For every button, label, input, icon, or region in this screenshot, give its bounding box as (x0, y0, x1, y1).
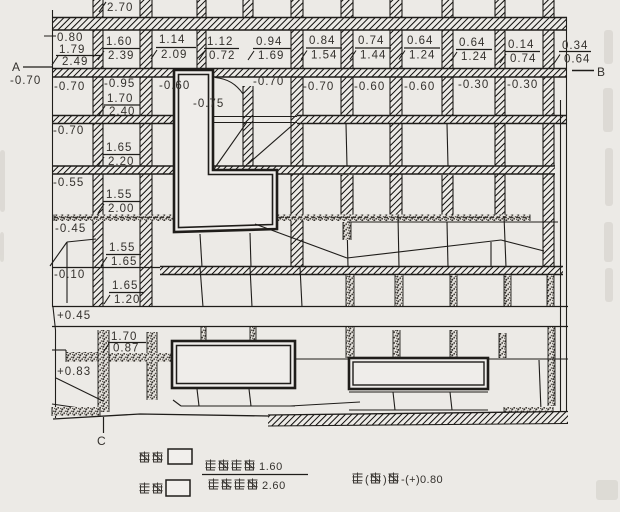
svg-text:B: B (597, 65, 605, 79)
svg-text:2.70: 2.70 (107, 2, 133, 14)
svg-text:1.70: 1.70 (111, 331, 137, 343)
svg-text:1.60: 1.60 (106, 36, 132, 48)
svg-text:1.69: 1.69 (258, 50, 284, 62)
svg-text:-0.70: -0.70 (53, 125, 84, 137)
svg-text:-0.30: -0.30 (458, 79, 489, 91)
svg-text:1.54: 1.54 (311, 50, 337, 62)
svg-text:1.24: 1.24 (461, 51, 487, 63)
svg-text:-0.95: -0.95 (104, 78, 135, 90)
svg-text:1.14: 1.14 (159, 34, 185, 46)
svg-text:-0.60: -0.60 (159, 80, 190, 92)
svg-text:2.60: 2.60 (262, 480, 286, 492)
svg-text:1.44: 1.44 (360, 50, 386, 62)
svg-text:A: A (12, 60, 20, 74)
svg-text:0.94: 0.94 (256, 36, 282, 48)
svg-text:0.72: 0.72 (209, 50, 235, 62)
svg-text:-0.60: -0.60 (404, 81, 435, 93)
svg-text:0.14: 0.14 (508, 39, 534, 51)
svg-text:-0.70: -0.70 (253, 76, 284, 88)
svg-text:-0.60: -0.60 (354, 81, 385, 93)
svg-text:1.55: 1.55 (109, 242, 135, 254)
svg-text:1.70: 1.70 (107, 93, 133, 105)
svg-text:0.84: 0.84 (309, 35, 335, 47)
svg-text:-0.70: -0.70 (10, 75, 41, 87)
svg-text:-0.30: -0.30 (507, 79, 538, 91)
svg-text:0.74: 0.74 (510, 53, 536, 65)
svg-text:-0.70: -0.70 (54, 81, 85, 93)
svg-text:): ) (383, 474, 387, 486)
svg-text:2.20: 2.20 (108, 156, 134, 168)
svg-text:+0.45: +0.45 (57, 310, 91, 322)
svg-text:2.00: 2.00 (108, 203, 134, 215)
svg-text:0.80: 0.80 (57, 32, 83, 44)
svg-text:+0.83: +0.83 (57, 366, 91, 378)
svg-text:0.64: 0.64 (407, 35, 433, 47)
svg-text:(: ( (365, 474, 369, 486)
svg-text:1.55: 1.55 (106, 189, 132, 201)
svg-text:2.40: 2.40 (109, 106, 135, 118)
svg-text:1.65: 1.65 (106, 142, 132, 154)
svg-text:-0.75: -0.75 (193, 98, 224, 110)
svg-text:-0.55: -0.55 (53, 177, 84, 189)
svg-text:1.65: 1.65 (111, 256, 137, 268)
svg-text:2.09: 2.09 (161, 49, 187, 61)
svg-text:1.65: 1.65 (112, 280, 138, 292)
svg-text:2.39: 2.39 (108, 50, 134, 62)
svg-text:2.49: 2.49 (62, 56, 88, 68)
svg-text:-0.45: -0.45 (55, 223, 86, 235)
svg-text:0.64: 0.64 (564, 54, 590, 66)
svg-text:1.24: 1.24 (409, 50, 435, 62)
svg-text:1.20: 1.20 (114, 294, 140, 306)
svg-text:1.12: 1.12 (207, 36, 233, 48)
svg-text:0.87: 0.87 (113, 343, 139, 355)
svg-text:-0.10: -0.10 (54, 269, 85, 281)
svg-text:0.34: 0.34 (562, 40, 588, 52)
svg-text:-0.70: -0.70 (303, 81, 334, 93)
svg-text:-(+)0.80: -(+)0.80 (401, 474, 443, 486)
svg-text:C: C (97, 434, 106, 448)
svg-text:0.64: 0.64 (459, 37, 485, 49)
svg-text:1.60: 1.60 (259, 461, 283, 473)
svg-text:1.79: 1.79 (59, 44, 85, 56)
svg-text:0.74: 0.74 (358, 35, 384, 47)
